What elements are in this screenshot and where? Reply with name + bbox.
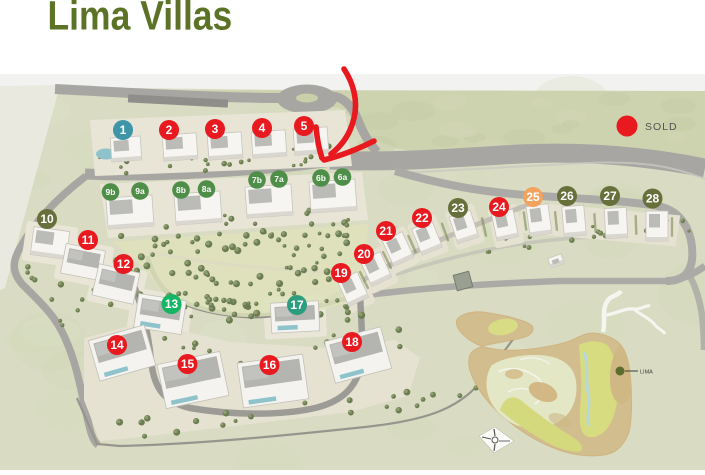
svg-text:7b: 7b	[252, 175, 262, 185]
svg-text:3: 3	[212, 122, 219, 136]
svg-text:28: 28	[646, 192, 660, 206]
svg-text:9b: 9b	[106, 187, 116, 197]
svg-text:8b: 8b	[176, 185, 186, 195]
svg-text:16: 16	[263, 358, 277, 372]
svg-text:1: 1	[120, 123, 127, 137]
svg-text:12: 12	[117, 257, 131, 271]
svg-text:25: 25	[526, 190, 540, 204]
svg-text:21: 21	[379, 224, 393, 238]
svg-text:17: 17	[290, 298, 304, 312]
svg-text:20: 20	[357, 247, 371, 261]
svg-text:22: 22	[415, 211, 429, 225]
svg-text:SOLD: SOLD	[645, 121, 678, 133]
svg-text:2: 2	[166, 123, 173, 137]
svg-text:10: 10	[40, 212, 54, 226]
svg-text:15: 15	[181, 357, 195, 371]
svg-text:6b: 6b	[316, 173, 326, 183]
svg-text:Lima Villas: Lima Villas	[48, 0, 233, 39]
svg-text:18: 18	[345, 335, 359, 349]
svg-text:24: 24	[492, 200, 506, 214]
svg-text:11: 11	[82, 233, 95, 247]
svg-text:6a: 6a	[338, 172, 348, 182]
svg-text:13: 13	[165, 297, 179, 311]
svg-text:4: 4	[259, 121, 266, 135]
svg-text:9a: 9a	[135, 186, 145, 196]
svg-text:5: 5	[301, 119, 308, 133]
svg-text:19: 19	[334, 266, 348, 280]
svg-text:26: 26	[560, 189, 574, 203]
svg-text:23: 23	[451, 201, 465, 215]
svg-text:27: 27	[603, 189, 617, 203]
svg-text:LIMA: LIMA	[640, 370, 653, 376]
svg-text:14: 14	[110, 338, 124, 352]
svg-text:7a: 7a	[274, 174, 284, 184]
svg-text:8a: 8a	[202, 184, 212, 194]
